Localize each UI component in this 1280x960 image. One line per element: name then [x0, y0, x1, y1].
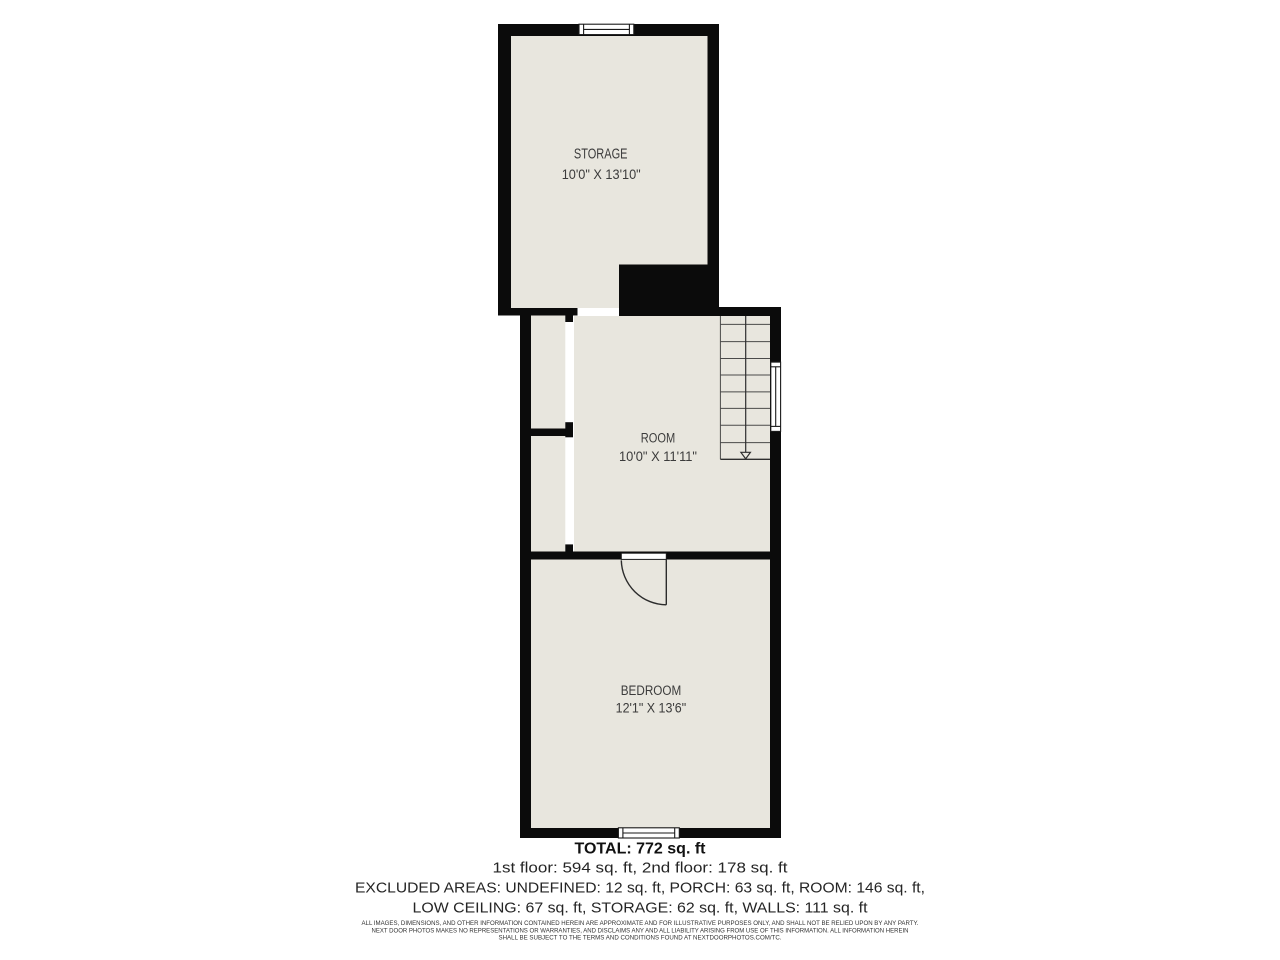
svg-text:EXCLUDED AREAS: UNDEFINED: 12: EXCLUDED AREAS: UNDEFINED: 12 sq. ft, PO…	[355, 880, 925, 897]
svg-text:12'1" X 13'6": 12'1" X 13'6"	[616, 701, 687, 716]
svg-text:10'0" X 11'11": 10'0" X 11'11"	[619, 448, 697, 464]
svg-text:BEDROOM: BEDROOM	[621, 683, 682, 698]
svg-text:TOTAL: 772 sq. ft: TOTAL: 772 sq. ft	[575, 841, 706, 858]
svg-text:10'0" X 13'10": 10'0" X 13'10"	[562, 166, 641, 182]
svg-text:1st floor: 594 sq. ft, 2nd flo: 1st floor: 594 sq. ft, 2nd floor: 178 sq…	[493, 860, 789, 877]
svg-text:ALL IMAGES, DIMENSIONS, AND OT: ALL IMAGES, DIMENSIONS, AND OTHER INFORM…	[362, 920, 919, 927]
svg-text:LOW CEILING: 67 sq. ft, STORAG: LOW CEILING: 67 sq. ft, STORAGE: 62 sq. …	[413, 900, 869, 917]
svg-text:SHALL BE SUBJECT TO THE TERMS: SHALL BE SUBJECT TO THE TERMS AND CONDIT…	[499, 935, 782, 942]
svg-text:STORAGE: STORAGE	[574, 146, 628, 163]
svg-text:ROOM: ROOM	[641, 431, 675, 446]
svg-text:NEXT DOOR PHOTOS MAKES NO REPR: NEXT DOOR PHOTOS MAKES NO REPRESENTATION…	[372, 927, 909, 934]
